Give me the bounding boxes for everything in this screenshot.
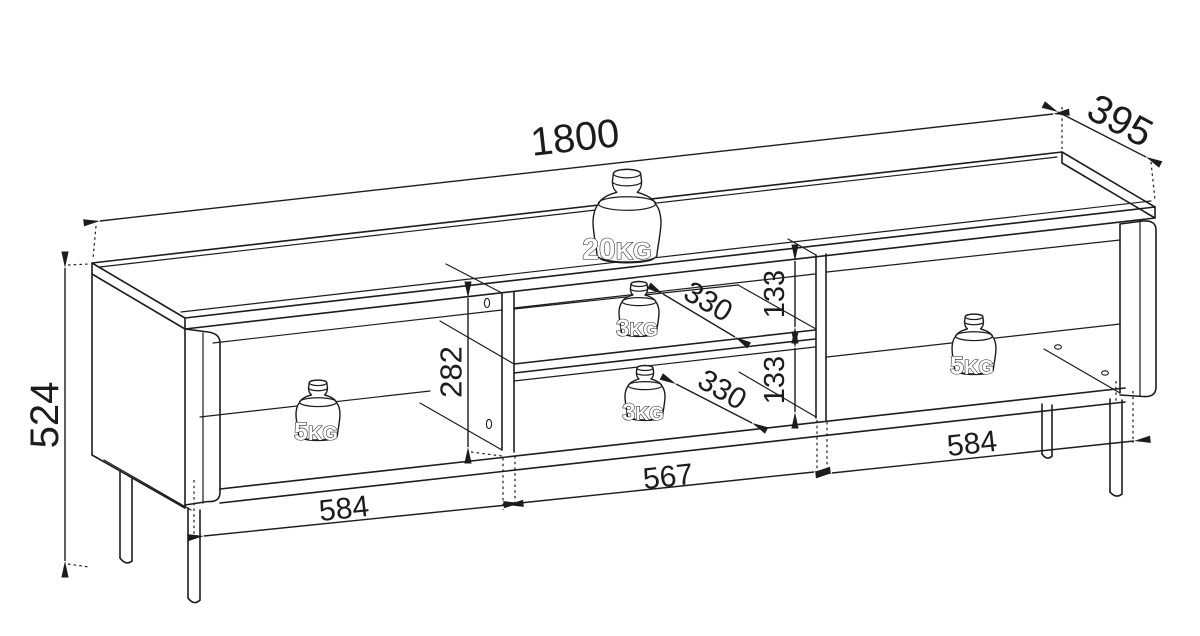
- weight-5kg-right-label: 5KG: [950, 352, 994, 380]
- weight-20kg-icon: 20KG: [582, 169, 661, 266]
- weight-3kg-upper-label: 3KG: [616, 315, 658, 342]
- dimension-lines: 1800 395 524 282 133 133 330 330 567 584…: [23, 86, 1160, 567]
- front-right-leg: [1110, 399, 1122, 496]
- weight-20kg-label: 20KG: [582, 233, 651, 266]
- dimension-567-label: 567: [641, 458, 694, 496]
- weight-3kg-upper-icon: 3KG: [616, 282, 659, 343]
- dimension-133-upper-label: 133: [759, 270, 791, 318]
- screw-hole: [1055, 345, 1062, 349]
- weight-3kg-lower-label: 3KG: [622, 399, 664, 426]
- dimension-584-left-label: 584: [317, 490, 370, 528]
- dimension-1800-label: 1800: [528, 111, 621, 165]
- weight-5kg-left-icon: 5KG: [294, 380, 340, 446]
- load-capacity-icons: 20KG 3KG 3KG 5KG 5KG: [294, 169, 996, 446]
- dimension-584-right-label: 584: [945, 425, 998, 463]
- weight-5kg-right-icon: 5KG: [950, 314, 996, 380]
- left-side-panel: [92, 274, 220, 537]
- right-side-panel: [1120, 221, 1156, 397]
- furniture-dimension-drawing: 20KG 3KG 3KG 5KG 5KG 1800 395: [0, 0, 1200, 636]
- dimension-282-label: 282: [434, 346, 469, 398]
- technical-drawing-page: 20KG 3KG 3KG 5KG 5KG 1800 395: [0, 0, 1200, 636]
- shelf-pin-hole: [484, 298, 489, 307]
- dimension-524-label: 524: [23, 382, 67, 449]
- shelf-pin-hole: [486, 419, 491, 428]
- dimension-330-lower-label: 330: [692, 363, 752, 417]
- back-left-leg: [120, 472, 132, 563]
- dimension-133-lower-label: 133: [759, 356, 791, 404]
- weight-3kg-lower-icon: 3KG: [622, 366, 665, 427]
- weight-5kg-left-label: 5KG: [294, 418, 338, 446]
- dimension-395-label: 395: [1080, 86, 1160, 156]
- screw-hole: [1102, 371, 1109, 375]
